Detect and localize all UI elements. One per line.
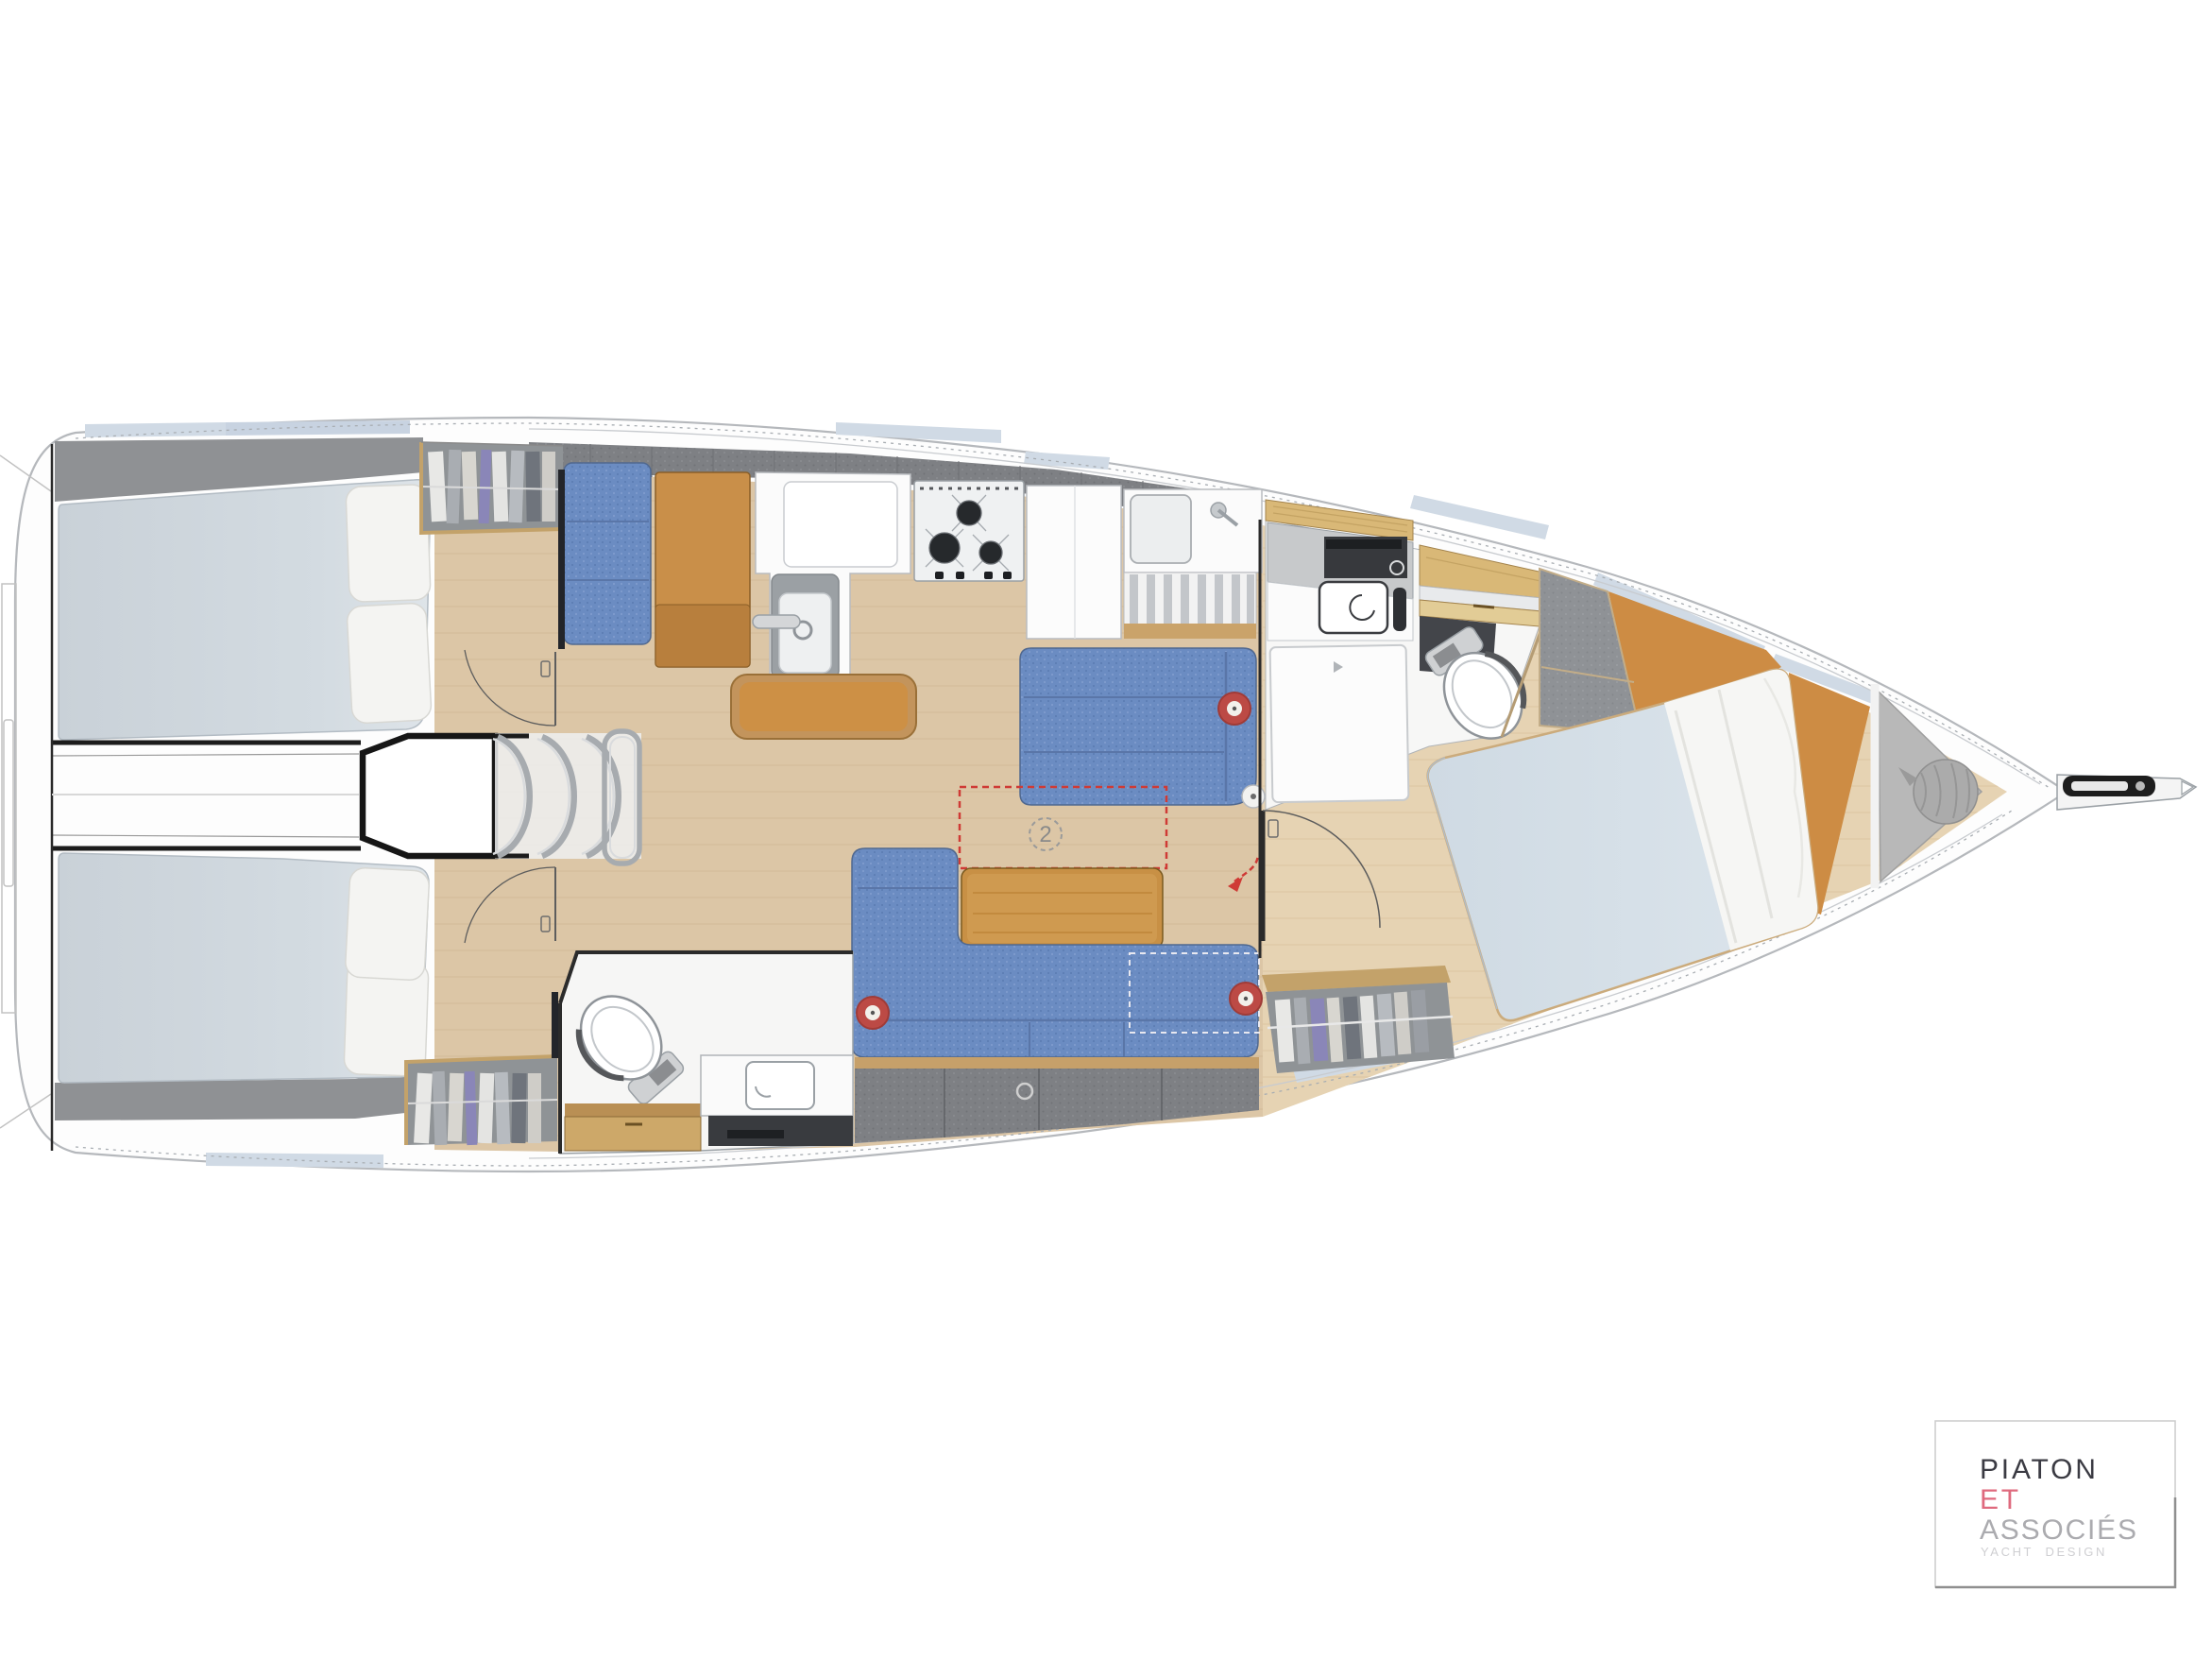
svg-text:ASSOCIÉS: ASSOCIÉS	[1980, 1514, 2138, 1546]
svg-text:2: 2	[1039, 822, 1051, 847]
svg-text:PIATON: PIATON	[1980, 1454, 2099, 1485]
svg-text:YACHT DESIGN: YACHT DESIGN	[1981, 1545, 2107, 1559]
svg-text:ET: ET	[1980, 1484, 2021, 1515]
